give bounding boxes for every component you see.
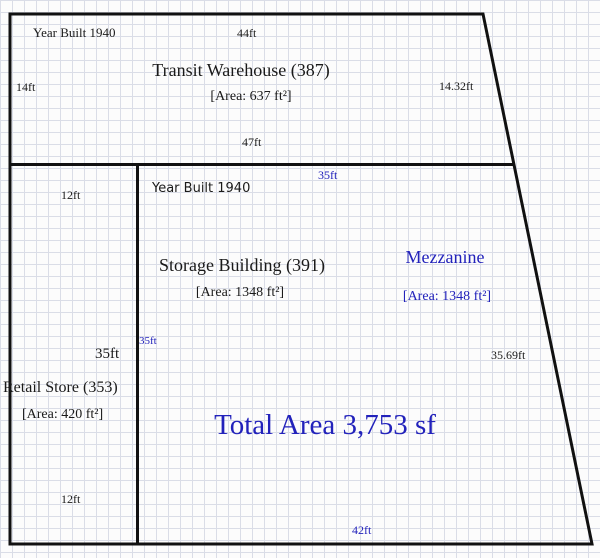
retail-top-dimension: 12ft — [61, 189, 80, 202]
storage-year-built-label: Year Built 1940 — [152, 182, 250, 196]
property-sketch-canvas: Year Built 1940 44ft Transit Warehouse (… — [0, 0, 600, 558]
building-outline-drawing — [0, 0, 600, 558]
mezzanine-top-dimension: 35ft — [318, 169, 337, 182]
storage-left-dimension-black: 35ft — [95, 346, 119, 363]
warehouse-year-built-label: Year Built 1940 — [33, 26, 115, 40]
mezzanine-right-dimension: 35.69ft — [491, 349, 525, 362]
retail-bottom-dimension: 12ft — [61, 493, 80, 506]
mezzanine-name-label: Mezzanine — [406, 248, 485, 268]
perimeter-outline — [10, 14, 592, 544]
retail-area-label: [Area: 420 ft²] — [22, 407, 103, 422]
storage-area-label: [Area: 1348 ft²] — [196, 285, 284, 300]
warehouse-name-label: Transit Warehouse (387) — [152, 61, 330, 81]
storage-left-dimension-blue: 35ft — [139, 335, 157, 347]
warehouse-left-dimension: 14ft — [16, 81, 35, 94]
warehouse-area-label: [Area: 637 ft²] — [210, 89, 291, 104]
mezzanine-area-label: [Area: 1348 ft²] — [403, 289, 491, 304]
warehouse-right-dimension: 14.32ft — [439, 80, 473, 93]
warehouse-bottom-dimension: 47ft — [242, 136, 261, 149]
storage-name-label: Storage Building (391) — [159, 256, 325, 276]
mezzanine-bottom-dimension: 42ft — [352, 524, 371, 537]
total-area-label: Total Area 3,753 sf — [214, 410, 436, 442]
warehouse-top-dimension: 44ft — [237, 27, 256, 40]
retail-name-label: Retail Store (353) — [3, 379, 118, 397]
